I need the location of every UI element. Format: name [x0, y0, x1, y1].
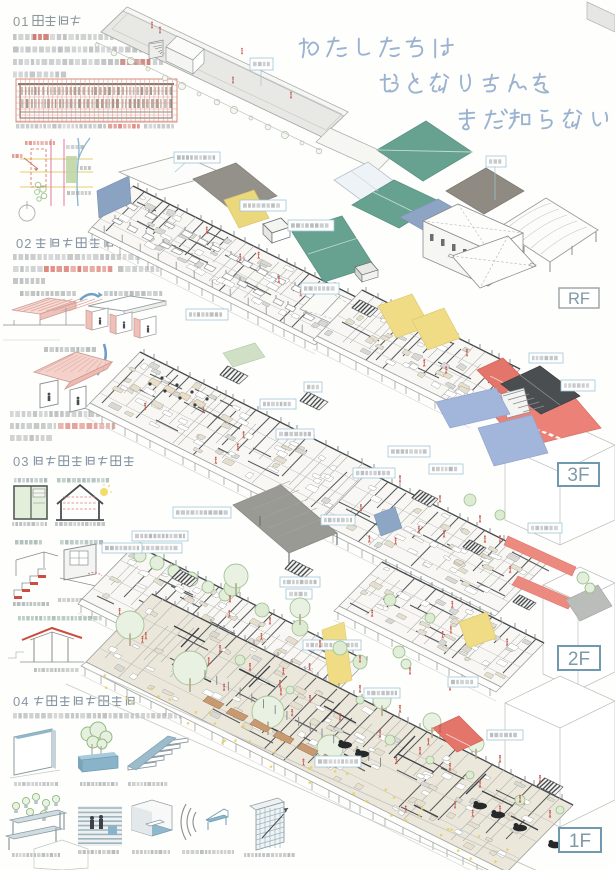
svg-text:RF: RF [568, 290, 590, 308]
svg-text:01: 01 [13, 14, 29, 29]
svg-text:02: 02 [16, 236, 32, 251]
svg-text:3F: 3F [567, 465, 589, 486]
svg-text:1F: 1F [569, 831, 591, 852]
svg-text:03: 03 [13, 454, 29, 469]
svg-text:2F: 2F [568, 649, 590, 670]
svg-text:04: 04 [13, 694, 29, 709]
